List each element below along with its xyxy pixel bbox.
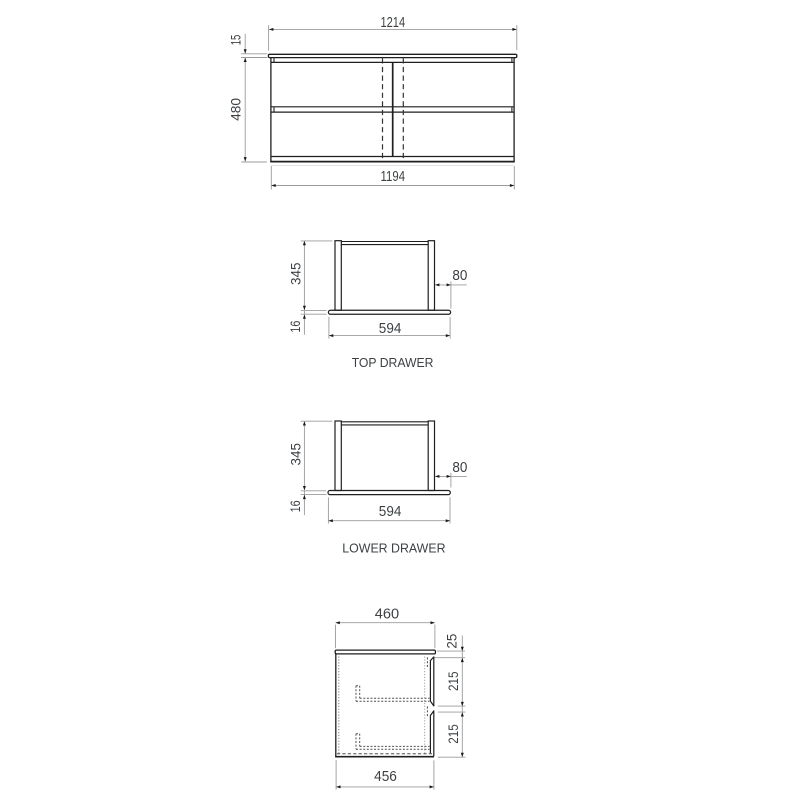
svg-text:16: 16 <box>288 500 303 512</box>
svg-text:TOP DRAWER: TOP DRAWER <box>352 355 434 370</box>
svg-text:16: 16 <box>288 320 303 332</box>
svg-text:594: 594 <box>379 504 402 520</box>
svg-text:456: 456 <box>374 769 397 785</box>
svg-text:460: 460 <box>375 606 399 622</box>
svg-text:1194: 1194 <box>381 169 406 185</box>
svg-text:15: 15 <box>228 35 243 46</box>
svg-text:80: 80 <box>452 460 467 476</box>
svg-text:LOWER DRAWER: LOWER DRAWER <box>342 541 445 556</box>
svg-text:345: 345 <box>288 443 303 466</box>
svg-text:594: 594 <box>379 321 402 337</box>
svg-text:25: 25 <box>445 633 460 648</box>
svg-text:215: 215 <box>446 671 461 691</box>
svg-text:480: 480 <box>229 98 244 121</box>
svg-text:215: 215 <box>446 724 461 744</box>
svg-text:345: 345 <box>288 262 303 285</box>
svg-text:1214: 1214 <box>380 15 405 31</box>
svg-text:80: 80 <box>452 268 467 284</box>
